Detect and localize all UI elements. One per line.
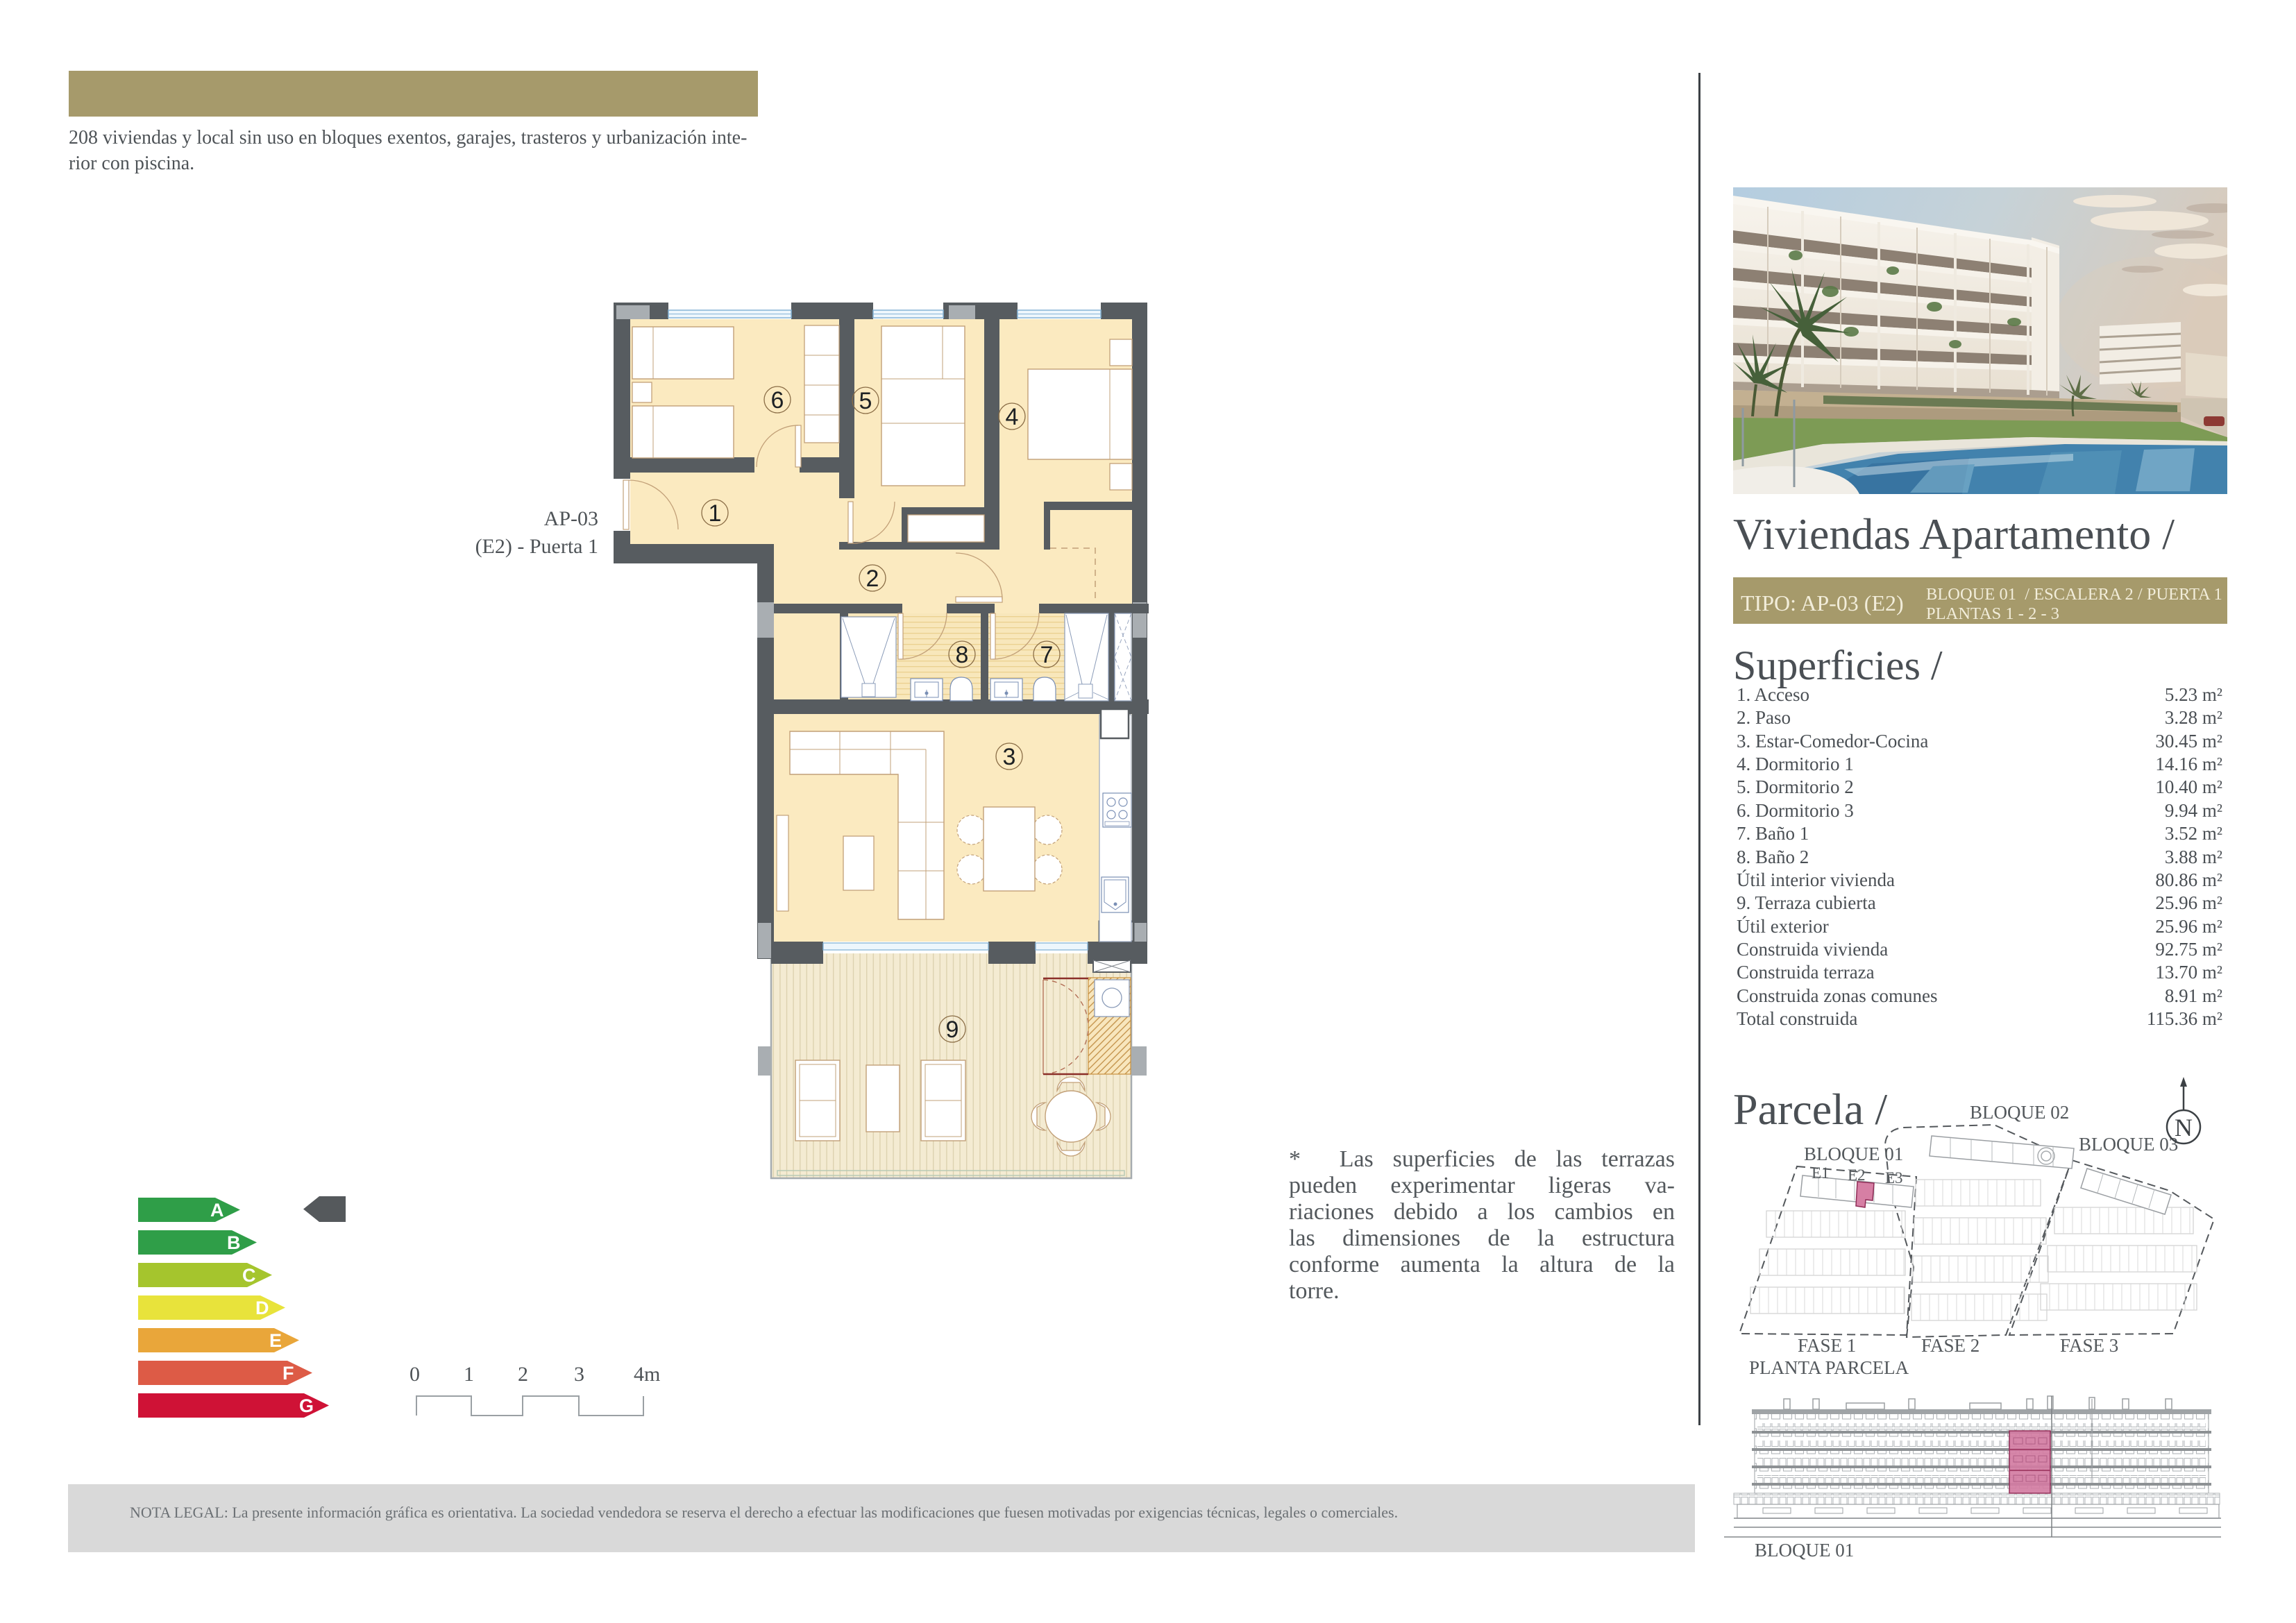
svg-text:E1: E1 [1812,1164,1830,1182]
svg-text:N: N [2175,1114,2193,1141]
svg-text:6: 6 [771,387,784,414]
svg-text:2: 2 [518,1363,528,1386]
svg-text:E2: E2 [1848,1166,1866,1184]
svg-text:D: D [255,1298,269,1318]
svg-text:G: G [299,1395,314,1416]
svg-text:BLOQUE 03: BLOQUE 03 [2079,1134,2178,1155]
svg-text:B: B [227,1232,241,1253]
svg-text:A: A [210,1200,224,1221]
svg-text:5: 5 [859,388,872,414]
svg-text:FASE 3: FASE 3 [2060,1335,2118,1356]
svg-text:4: 4 [1006,404,1019,430]
svg-text:7: 7 [1040,642,1054,668]
svg-text:C: C [242,1265,256,1286]
svg-text:9: 9 [946,1017,959,1043]
svg-text:0: 0 [410,1363,420,1386]
svg-text:3: 3 [1003,744,1016,770]
svg-text:1: 1 [709,500,722,527]
svg-text:8: 8 [956,642,969,668]
svg-text:E: E [269,1330,282,1351]
svg-text:2: 2 [866,566,879,592]
svg-text:1: 1 [464,1363,474,1386]
svg-text:BLOQUE 02: BLOQUE 02 [1970,1102,2069,1123]
svg-text:3: 3 [574,1363,584,1386]
svg-text:F: F [282,1363,294,1384]
svg-text:FASE 2: FASE 2 [1921,1335,1980,1356]
svg-text:4m: 4m [634,1363,660,1386]
svg-text:E3: E3 [1885,1169,1903,1187]
svg-text:BLOQUE 01: BLOQUE 01 [1804,1144,1903,1164]
svg-text:FASE 1: FASE 1 [1798,1335,1856,1356]
